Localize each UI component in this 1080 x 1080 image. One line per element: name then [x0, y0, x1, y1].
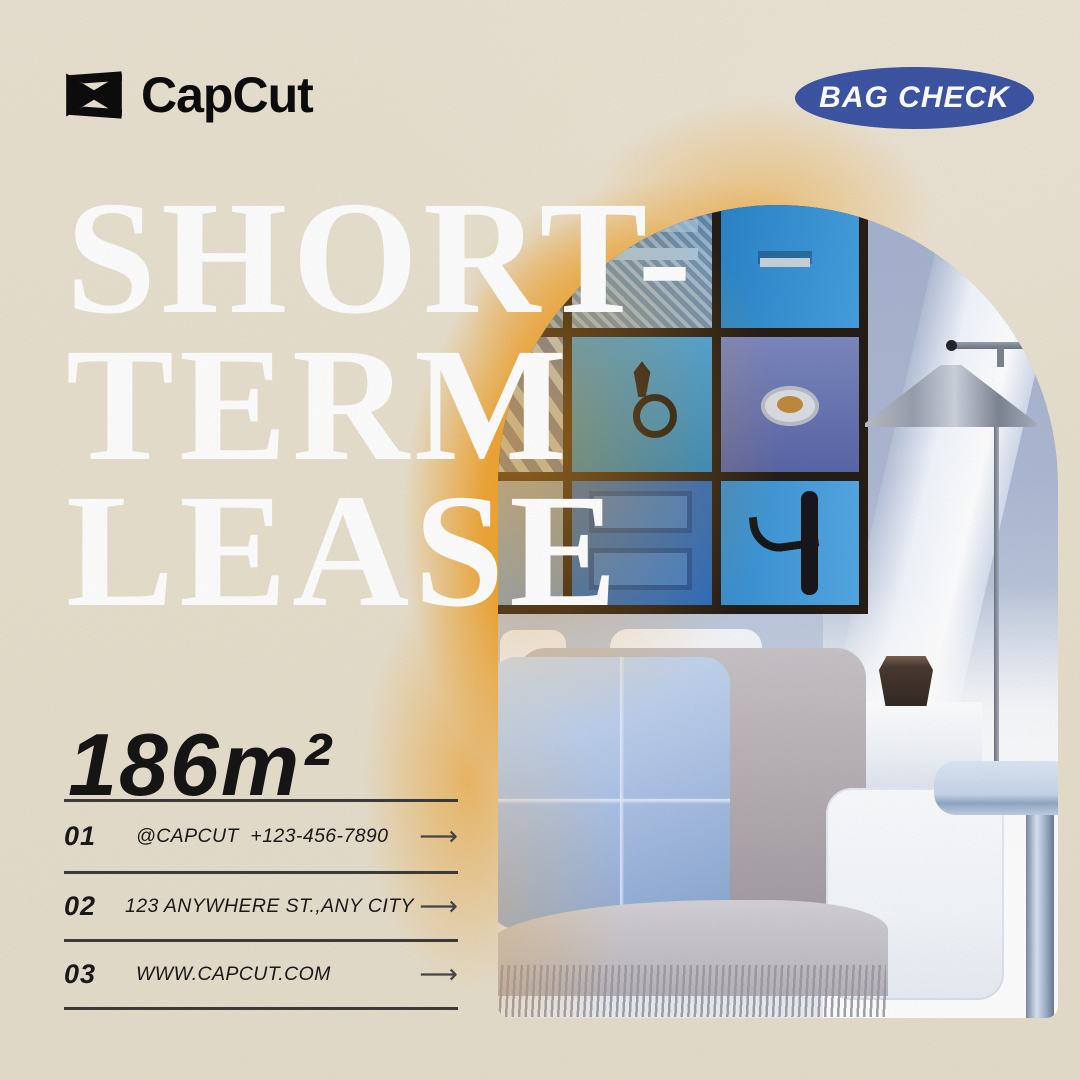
blanket-fringe [498, 965, 886, 1017]
arrow-right-icon: ⟶ [406, 959, 458, 990]
row-number: 01 [64, 821, 136, 852]
row-text: WWW.CAPCUT.COM [136, 963, 406, 986]
gallery-cell-blue-door [721, 205, 859, 328]
capcut-logo: CapCut [60, 64, 313, 126]
contact-row-3: 03 WWW.CAPCUT.COM ⟶ [64, 940, 458, 1008]
blue-pillow [498, 657, 730, 929]
capcut-logo-text: CapCut [141, 66, 313, 124]
row-number: 02 [64, 891, 125, 922]
arrow-right-icon: ⟶ [406, 821, 458, 852]
badge-label: BAG CHECK [819, 81, 1010, 115]
c-table-top [934, 761, 1058, 815]
headline-line-3: LEASE [66, 471, 622, 633]
floor-lamp-arm [950, 342, 1036, 349]
floor-lamp-pole [994, 427, 999, 767]
c-table-leg [1026, 815, 1054, 1018]
capcut-logo-icon [60, 64, 128, 126]
row-text: @CAPCUT +123-456-7890 [136, 825, 406, 848]
dark-vase [879, 656, 933, 706]
gallery-cell-handle-door [721, 481, 859, 605]
row-text: 123 ANYWHERE ST.,ANY CITY [125, 895, 414, 918]
bag-check-badge: BAG CHECK [795, 67, 1034, 129]
gallery-cell-knocker-door [572, 337, 712, 472]
poster-canvas: SHORT- TERM LEASE CapCut BAG CHECK 186m²… [0, 0, 1080, 1080]
contact-row-1: 01 @CAPCUT +123-456-7890 ⟶ [64, 802, 458, 870]
contact-row-2: 02 123 ANYWHERE ST.,ANY CITY ⟶ [64, 872, 458, 940]
floor-lamp-stem [997, 347, 1004, 367]
arrow-right-icon: ⟶ [414, 891, 458, 922]
gallery-cell-medallion-door [721, 337, 859, 472]
row-number: 03 [64, 959, 136, 990]
